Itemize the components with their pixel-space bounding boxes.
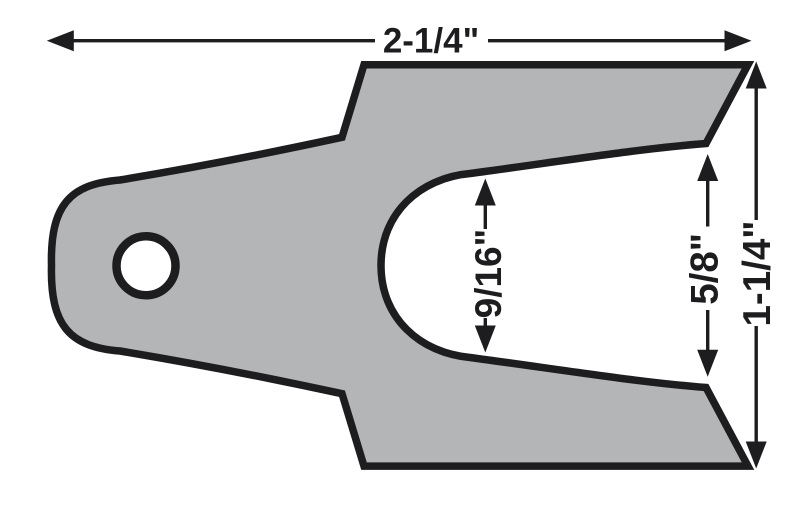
svg-text:2-1/4": 2-1/4" — [383, 22, 479, 61]
svg-text:5/8": 5/8" — [683, 233, 726, 305]
svg-text:1-1/4": 1-1/4" — [736, 220, 779, 326]
svg-text:9/16": 9/16" — [468, 229, 509, 319]
